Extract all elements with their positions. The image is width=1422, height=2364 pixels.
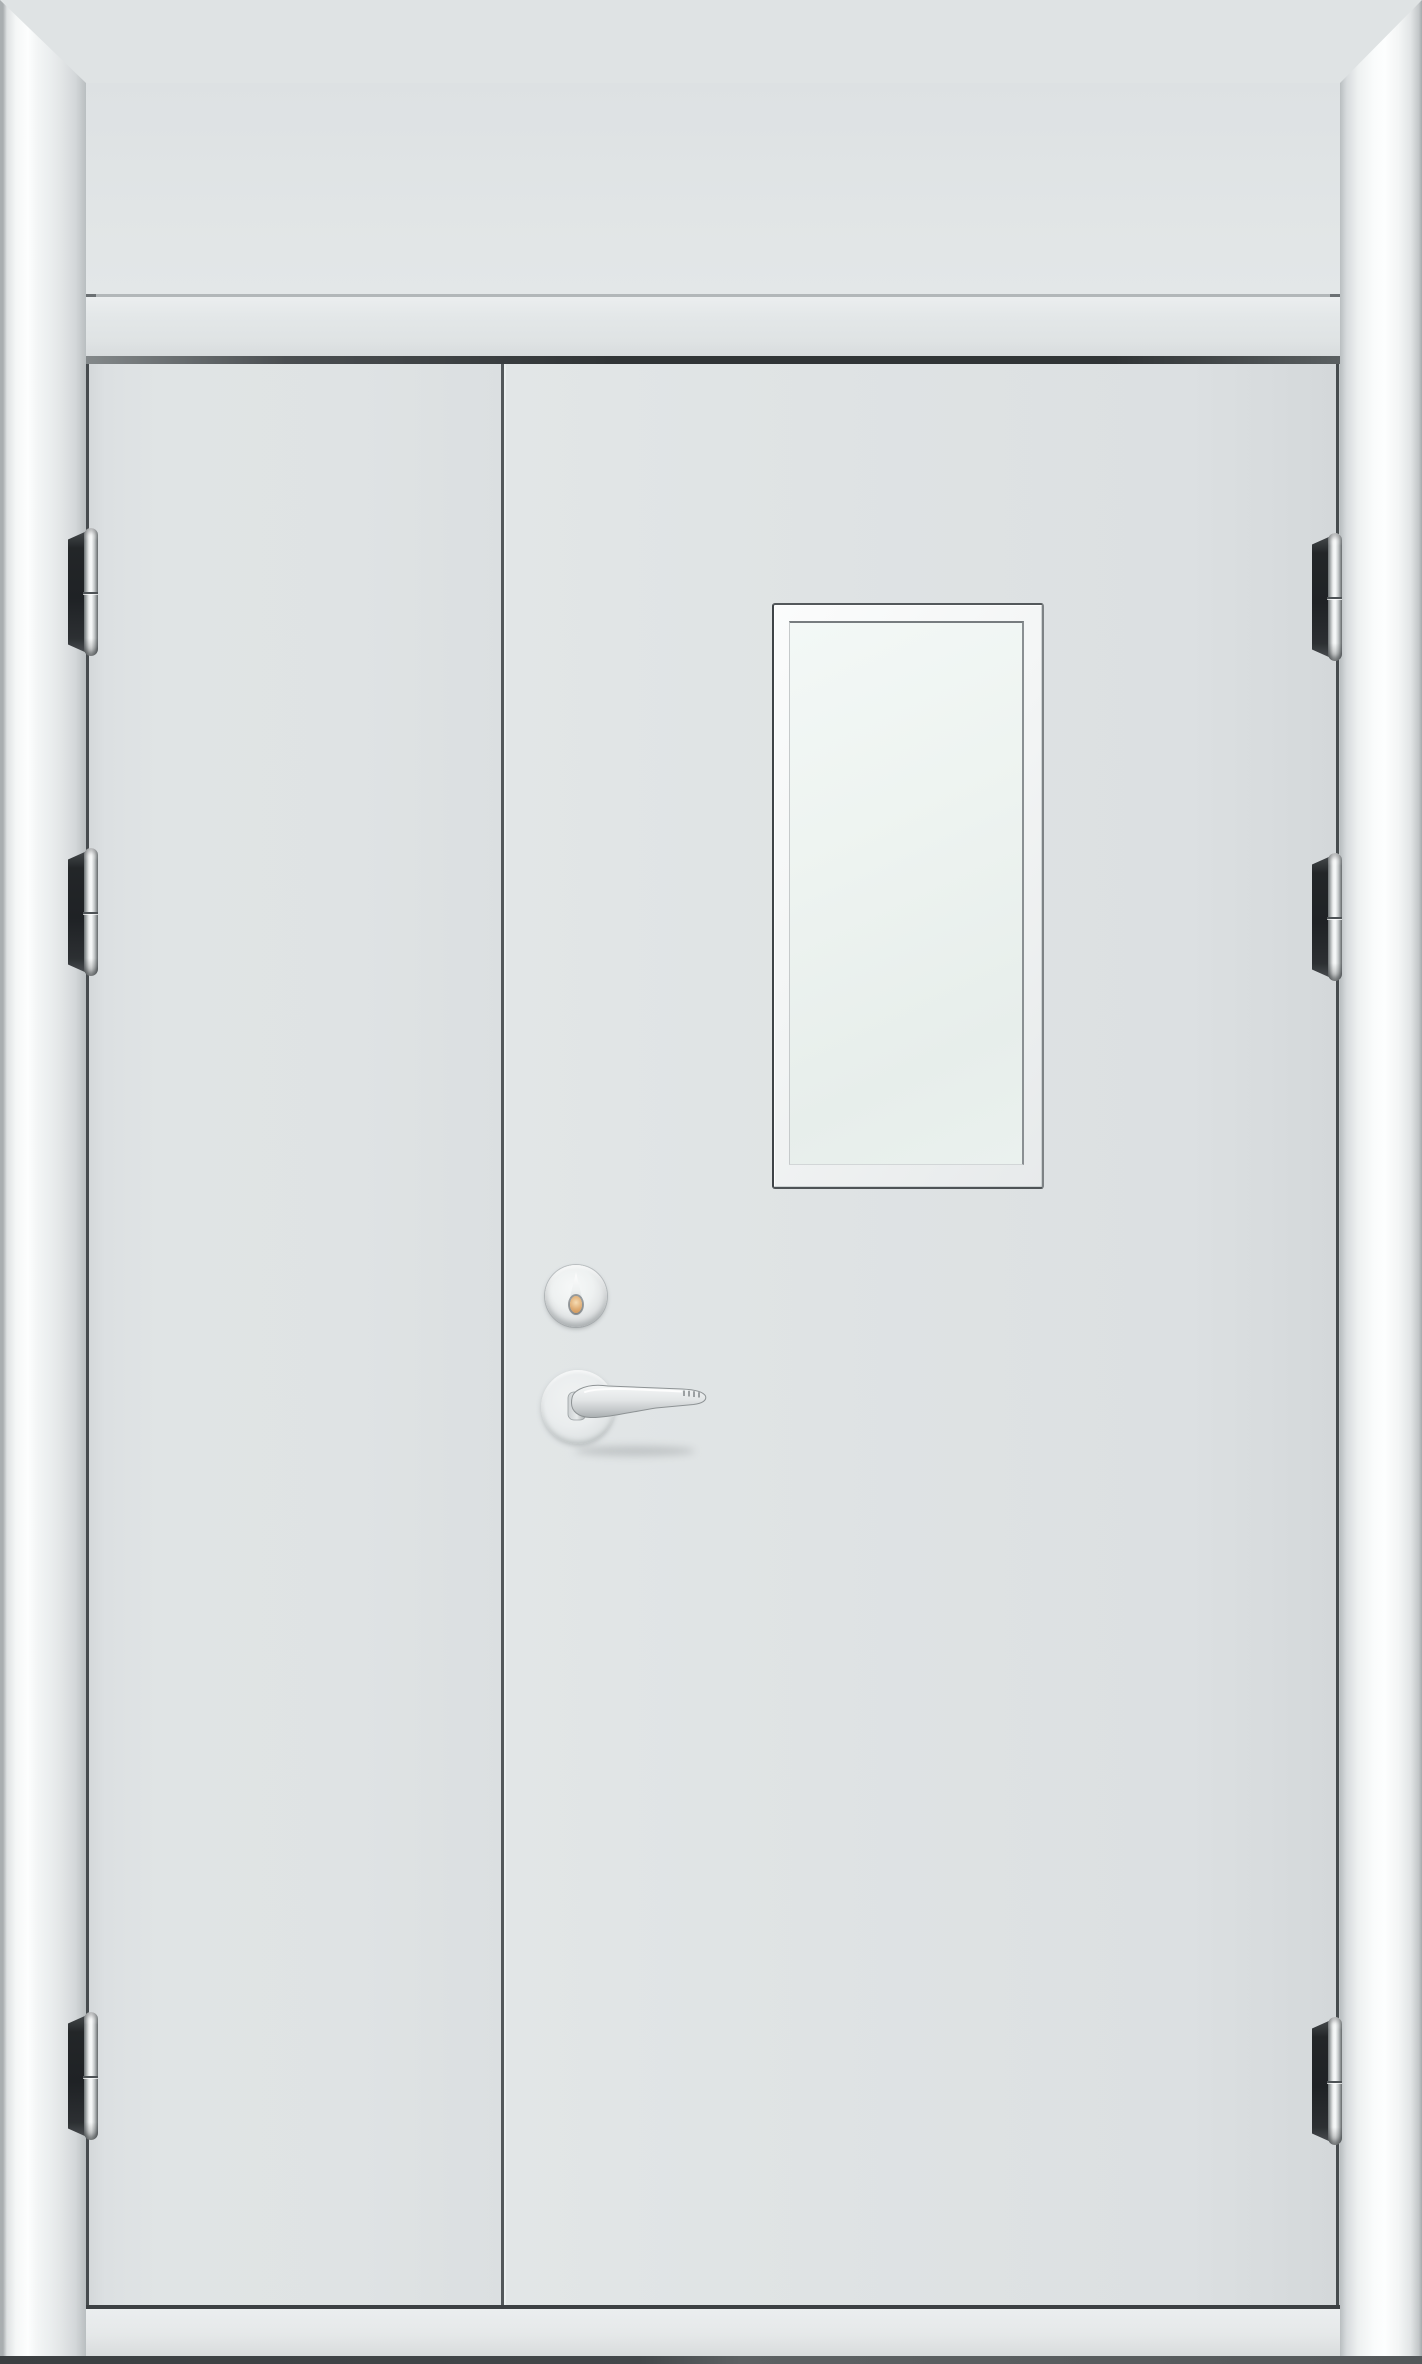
door-leaf-left	[86, 364, 504, 2305]
hinge-seam	[1327, 917, 1342, 919]
meeting-stile-line	[501, 364, 504, 2305]
door-frame-left	[0, 0, 86, 2364]
hinge-left-middle	[68, 848, 98, 976]
hinge-seam	[1327, 597, 1342, 599]
handle-shadow	[575, 1446, 695, 1456]
hinge-seam	[83, 592, 98, 594]
hinge-seam	[83, 912, 98, 914]
transom-bottom-rail	[86, 297, 1340, 356]
door-product-photo	[0, 0, 1422, 2364]
hinge-right-middle	[1312, 853, 1342, 981]
door-bottom-gap-shadow	[86, 2305, 1340, 2309]
vision-window-frame	[772, 603, 1044, 1189]
hinge-right-top	[1312, 533, 1342, 661]
transom-panel	[86, 83, 1340, 294]
door-frame-right	[1340, 0, 1422, 2364]
threshold	[86, 2309, 1340, 2356]
hinge-seam	[83, 2076, 98, 2078]
floor-shadow-line	[0, 2356, 1422, 2364]
lever-handle	[535, 1366, 725, 1446]
keyhole	[570, 1296, 582, 1313]
lock-cylinder	[545, 1265, 607, 1327]
hinge-seam	[1327, 2081, 1342, 2083]
door-head-gap-shadow	[86, 356, 1340, 364]
vision-window-glass	[789, 621, 1024, 1165]
keyway-highlight	[568, 1272, 584, 1298]
hinge-left-bottom	[68, 2012, 98, 2140]
hinge-left-top	[68, 528, 98, 656]
door-frame-top	[0, 0, 1422, 83]
hinge-right-bottom	[1312, 2017, 1342, 2145]
